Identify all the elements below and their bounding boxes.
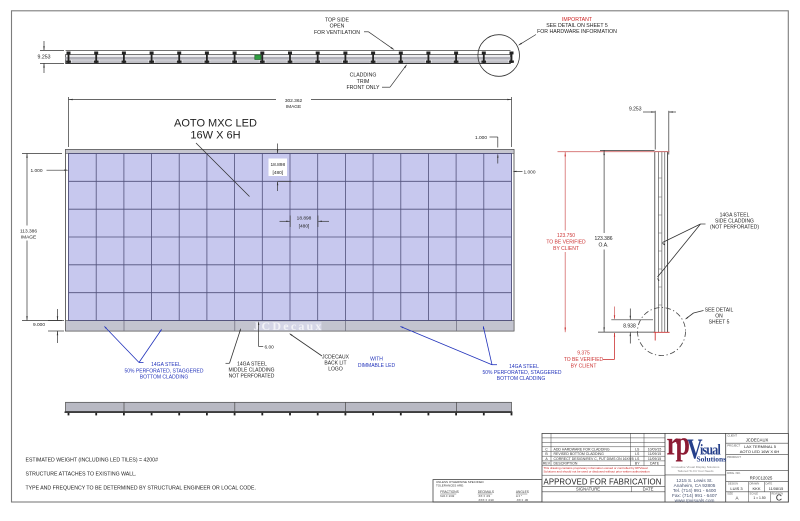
svg-text:(NOT PERFORATED): (NOT PERFORATED) (710, 225, 759, 231)
svg-text:18.898: 18.898 (270, 162, 285, 168)
svg-text:1.000: 1.000 (524, 169, 536, 175)
svg-text:BACK LIT: BACK LIT (324, 361, 346, 367)
svg-text:CORRECT DESIGN/REV C, PUT DIMS: CORRECT DESIGN/REV C, PUT DIMS ON 16X9/5 (554, 457, 634, 461)
svg-text:FOR VENTILATION: FOR VENTILATION (314, 30, 360, 36)
svg-text:11/09/15: 11/09/15 (648, 457, 661, 461)
svg-text:TYPE AND FREQUENCY TO BE DETER: TYPE AND FREQUENCY TO BE DETERMINED BY S… (26, 486, 256, 492)
svg-text:DATE: DATE (643, 487, 654, 492)
svg-text:KKK: KKK (752, 486, 760, 491)
svg-text:JCDecaux: JCDecaux (253, 319, 323, 333)
svg-text:11/09/15: 11/09/15 (648, 452, 661, 456)
svg-text:Solutions: Solutions (696, 455, 726, 464)
svg-text:CLIENT: CLIENT (727, 434, 737, 438)
svg-text:1.000: 1.000 (30, 168, 42, 174)
svg-text:9.253: 9.253 (38, 55, 51, 61)
svg-text:APPROVED FOR FABRICATION: APPROVED FOR FABRICATION (544, 477, 662, 486)
svg-text:PRODUCT: PRODUCT (727, 455, 741, 459)
svg-text:[480]: [480] (299, 224, 310, 230)
svg-text:LS: LS (635, 452, 640, 456)
svg-text:SHEET 5: SHEET 5 (709, 320, 730, 326)
svg-text:WITH: WITH (370, 357, 383, 363)
svg-text:TRIM: TRIM (357, 79, 370, 85)
svg-text:A: A (735, 496, 738, 501)
svg-text:SEE DETAIL ON SHEET 5: SEE DETAIL ON SHEET 5 (546, 23, 608, 29)
svg-text:ESTIMATED WEIGHT (INCLUDING LE: ESTIMATED WEIGHT (INCLUDING LED TILES) =… (26, 458, 159, 464)
svg-text:FOR HARDWARE INFORMATION: FOR HARDWARE INFORMATION (537, 29, 617, 35)
svg-text:OPEN: OPEN (330, 24, 345, 30)
svg-text:BY CLIENT: BY CLIENT (571, 363, 597, 369)
svg-text:AOTO MXC LED: AOTO MXC LED (174, 118, 257, 130)
svg-text:BOTTOM CLADDING: BOTTOM CLADDING (140, 374, 189, 380)
svg-text:DWG. NO.: DWG. NO. (727, 471, 741, 475)
svg-text:IMAGE: IMAGE (21, 235, 36, 241)
svg-text:www.rpvisuals.com: www.rpvisuals.com (675, 498, 715, 503)
svg-text:SIDE CLADDING: SIDE CLADDING (715, 219, 754, 225)
svg-text:TO BE VERIFIED: TO BE VERIFIED (564, 357, 604, 363)
svg-text:SIGNATURE: SIGNATURE (576, 487, 600, 492)
svg-text:9.253: 9.253 (629, 106, 642, 112)
svg-text:113.386: 113.386 (20, 229, 37, 235)
svg-text:BOTTOM CLADDING: BOTTOM CLADDING (497, 376, 546, 382)
svg-text:ADD HARDWARE FOR CLADDING: ADD HARDWARE FOR CLADDING (554, 448, 610, 452)
svg-text:PROJECT: PROJECT (727, 443, 740, 447)
svg-text:LS: LS (635, 457, 640, 461)
svg-text:FRONT ONLY: FRONT ONLY (347, 85, 380, 91)
svg-text:14GA STEEL: 14GA STEEL (151, 362, 181, 368)
svg-text:LOGO: LOGO (328, 367, 343, 373)
svg-text:TOLERANCES ARE:: TOLERANCES ARE: (436, 484, 464, 488)
svg-text:9.000: 9.000 (33, 322, 45, 328)
svg-text:MIDDLE CLADDING: MIDDLE CLADDING (228, 367, 274, 373)
svg-text:LUIS 3: LUIS 3 (730, 486, 743, 491)
svg-text:N/A ± 1/32: N/A ± 1/32 (440, 494, 454, 498)
svg-text:123.750: 123.750 (557, 233, 575, 239)
svg-text:16W X 6H: 16W X 6H (190, 130, 240, 142)
svg-text:C: C (776, 493, 782, 503)
svg-text:REVISED BOTTOM CLADDING: REVISED BOTTOM CLADDING (554, 452, 605, 456)
svg-text:CLADDING: CLADDING (350, 73, 377, 79)
svg-text:BY CLIENT: BY CLIENT (553, 246, 579, 252)
svg-text:SIZE: SIZE (727, 492, 733, 496)
svg-text:JCDECAUX: JCDECAUX (746, 438, 769, 443)
svg-text:14GA STEEL: 14GA STEEL (720, 213, 750, 219)
svg-text:1 = 1.50: 1 = 1.50 (753, 496, 765, 500)
svg-text:302.362: 302.362 (285, 98, 303, 104)
svg-text:123.386: 123.386 (594, 236, 612, 242)
svg-text:50% PERFORATED, STAGGERED: 50% PERFORATED, STAGGERED (125, 368, 204, 374)
svg-text:STRUCTURE ATTACHES TO EXISTING: STRUCTURE ATTACHES TO EXISTING WALL. (26, 472, 137, 478)
svg-text:6.00: 6.00 (265, 344, 275, 350)
svg-text:.XXX ± .010: .XXX ± .010 (478, 498, 494, 502)
svg-text:SEE DETAIL: SEE DETAIL (705, 308, 734, 314)
svg-text:1.000: 1.000 (475, 135, 487, 141)
svg-text:11/08/15: 11/08/15 (769, 487, 784, 491)
svg-text:IMPORTANT: IMPORTANT (562, 17, 593, 23)
svg-text:TOP SIDE: TOP SIDE (325, 18, 350, 24)
svg-text:Solutions and should not be us: Solutions and should not be used or disc… (544, 470, 650, 474)
svg-text:NOT PERFORATED: NOT PERFORATED (229, 374, 275, 380)
svg-text:LS: LS (635, 448, 640, 452)
svg-text:.XX ± .30: .XX ± .30 (516, 498, 529, 502)
svg-text:TO BE VERIFIED: TO BE VERIFIED (546, 240, 586, 246)
svg-text:[480]: [480] (272, 170, 283, 176)
svg-text:DIMMABLE LED: DIMMABLE LED (358, 363, 396, 369)
svg-text:ON: ON (715, 314, 723, 320)
svg-text:14GA STEEL: 14GA STEEL (237, 361, 267, 367)
svg-text:Tailored To Fit Your Needs: Tailored To Fit Your Needs (677, 469, 714, 473)
svg-text:10/09/15: 10/09/15 (648, 448, 662, 452)
svg-text:JCDECAUX: JCDECAUX (322, 355, 350, 361)
svg-text:9.375: 9.375 (577, 351, 590, 357)
svg-text:RPJC12025: RPJC12025 (750, 476, 773, 481)
svg-text:18.898: 18.898 (297, 216, 312, 222)
svg-text:IMAGE: IMAGE (286, 104, 301, 110)
svg-text:rp: rp (667, 424, 690, 462)
svg-text:DATE: DATE (650, 462, 660, 466)
svg-text:AOTO LED 16W X 6H: AOTO LED 16W X 6H (740, 449, 780, 454)
svg-text:DATE: DATE (766, 482, 773, 486)
svg-text:O.A.: O.A. (598, 243, 608, 249)
svg-text:8.938: 8.938 (623, 324, 636, 330)
